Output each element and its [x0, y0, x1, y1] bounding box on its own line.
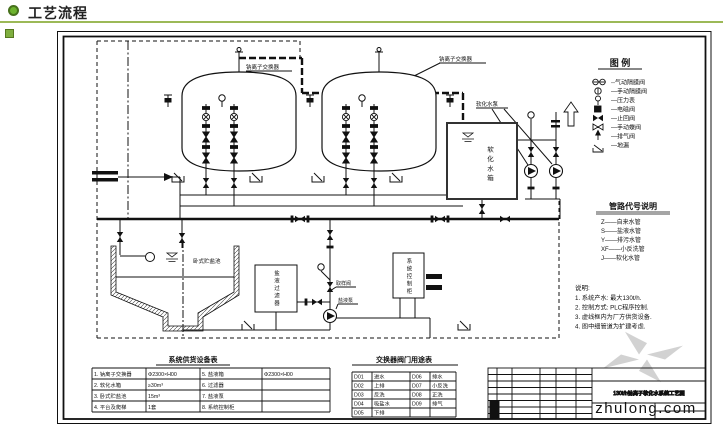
note-line: 2. 控制方式: PLC程序控制.: [575, 304, 649, 312]
float-valve-icon: [146, 253, 155, 262]
table-cell: D08: [412, 393, 422, 399]
vent-arrow-icon: [564, 102, 578, 126]
table-cell: 6. 过滤器: [202, 381, 224, 389]
legend-item-label: —手动蝶阀: [611, 124, 641, 132]
table-cell: 15m³: [148, 394, 160, 400]
table-cell: D07: [412, 384, 422, 390]
table-cell: D09: [412, 402, 422, 408]
legend-item-label: —手动隔膜阀: [611, 88, 647, 96]
raw-water-inlet-icon: [92, 171, 173, 182]
table-cell: D06: [412, 375, 422, 381]
valve-table: 交换器阀门用途表 D01 进水 D06 排水 D02 上排 D07 小反洗 D0…: [352, 355, 458, 417]
page-title: 工艺流程: [28, 3, 88, 23]
table-cell: 4. 平台及爬梯: [94, 403, 127, 411]
table-cell: ≥30m³: [148, 383, 163, 389]
table-cell: 上排: [374, 382, 385, 390]
notes-title: 说明:: [575, 283, 590, 292]
control-cabinet-label: 系统控制柜: [406, 257, 413, 296]
pipe-code-item: J——软化水管: [601, 254, 640, 262]
table-cell: D02: [354, 384, 364, 390]
green-square-icon: [5, 29, 14, 38]
legend-item-label: —止回阀: [611, 115, 635, 123]
manual-butterfly-valve-icon: [593, 124, 603, 130]
pipe-code-item: XF——小反洗管: [601, 245, 645, 253]
soft-water-pump-1-icon: [525, 165, 538, 178]
note-line: 1. 系统产水: 最大130t/h.: [575, 294, 642, 302]
air-fitting-icon: [164, 95, 172, 107]
air-fitting-icon: [306, 95, 314, 107]
table-cell: Φ2300×H00: [264, 372, 293, 378]
legend-item-label: —地漏: [611, 142, 629, 150]
salt-pump-label: 盐液泵: [338, 297, 353, 304]
note-line: 4. 图中细管道为扩建考虑.: [575, 323, 646, 331]
green-bullet-icon: [8, 5, 19, 16]
table-cell: 2. 软化水箱: [94, 381, 122, 389]
table-cell: 3. 卧式贮盐池: [94, 392, 127, 400]
table-cell: 小反洗: [432, 382, 449, 390]
pipe-code-item: Z——自来水管: [601, 218, 641, 226]
table-cell: 进水: [374, 373, 385, 381]
equipment-table: 系统供货设备表 1. 钠离子交换器 Φ2300×H00 5. 盐液箱 Φ2300…: [92, 355, 330, 412]
soft-water-pump-label: 软化水泵: [476, 100, 499, 108]
table-cell: 7. 盐液泵: [202, 392, 224, 400]
legend-item-label: —压力表: [611, 97, 635, 105]
table-cell: D04: [354, 402, 364, 408]
page-header: 工艺流程: [0, 0, 723, 28]
pipe-code-item: S——盐液水管: [601, 227, 641, 235]
legend-title: 图 例: [610, 57, 631, 68]
table-cell: D03: [354, 393, 364, 399]
pipe-code-item: Y——排污水管: [601, 236, 641, 244]
table-cell: D05: [354, 411, 364, 417]
table-cell: 反洗: [374, 391, 385, 399]
table-cell: 5. 盐液箱: [202, 370, 224, 378]
equipment-table-title: 系统供货设备表: [169, 355, 219, 364]
floor-drain-icon: [593, 145, 603, 152]
table-cell: D01: [354, 375, 364, 381]
soft-water-tank: [447, 123, 517, 199]
solenoid-valve-icon: [595, 106, 602, 112]
control-cabinet: [393, 253, 442, 298]
exchanger-2: [322, 48, 436, 172]
exchanger-2-label: 钠离子交换器: [439, 55, 473, 63]
pipe-code-title: 管路代号说明: [609, 201, 657, 211]
soft-water-pump-2-icon: [550, 165, 563, 178]
table-cell: 8. 系统控制柜: [202, 403, 235, 411]
table-cell: Φ2300×H00: [148, 372, 177, 378]
note-line: 3. 虚线框内为厂方供货设备.: [575, 313, 652, 321]
exchanger-1-label: 钠离子交换器: [246, 63, 280, 71]
legend: 图 例 --气动隔膜阀 —手动隔膜阀 —压力表 —电磁阀 —止回阀 —手动蝶阀 …: [593, 57, 647, 152]
table-cell: 排水: [432, 373, 443, 381]
check-valve-icon: [593, 115, 603, 121]
sampling-valve-label: 取样阀: [336, 280, 351, 287]
salt-pump-icon: [324, 310, 337, 323]
zhulong-watermark: zhulong.com: [595, 332, 697, 417]
drawing-title: 130t/h钠离子软化水系统工艺图: [613, 389, 685, 397]
air-fitting-icon: [446, 95, 454, 107]
table-cell: 吸盐水: [374, 400, 391, 408]
table-cell: 下排: [374, 409, 385, 417]
salt-pool-label: 卧式贮盐池: [193, 257, 221, 265]
table-cell: 正洗: [432, 391, 443, 399]
legend-item-label: --气动隔膜阀: [611, 79, 645, 87]
pipe-code-list: 管路代号说明 Z——自来水管 S——盐液水管 Y——排污水管 XF——小反洗管 …: [596, 201, 670, 262]
table-cell: 1. 钠离子交换器: [94, 370, 132, 378]
table-cell: 1套: [148, 403, 157, 411]
zhulong-logo-icon: [603, 332, 683, 382]
process-flow-drawing: zhulong.com: [0, 0, 723, 435]
legend-item-label: —电磁阀: [611, 106, 635, 114]
legend-item-label: —排气阀: [611, 133, 635, 141]
salt-filter-label: 盐液过滤器: [273, 269, 280, 308]
notes: 说明: 1. 系统产水: 最大130t/h. 2. 控制方式: PLC程序控制.…: [575, 283, 652, 331]
valve-table-title: 交换器阀门用途表: [376, 355, 433, 364]
table-cell: 排气: [432, 400, 443, 408]
header-divider: [0, 21, 723, 23]
